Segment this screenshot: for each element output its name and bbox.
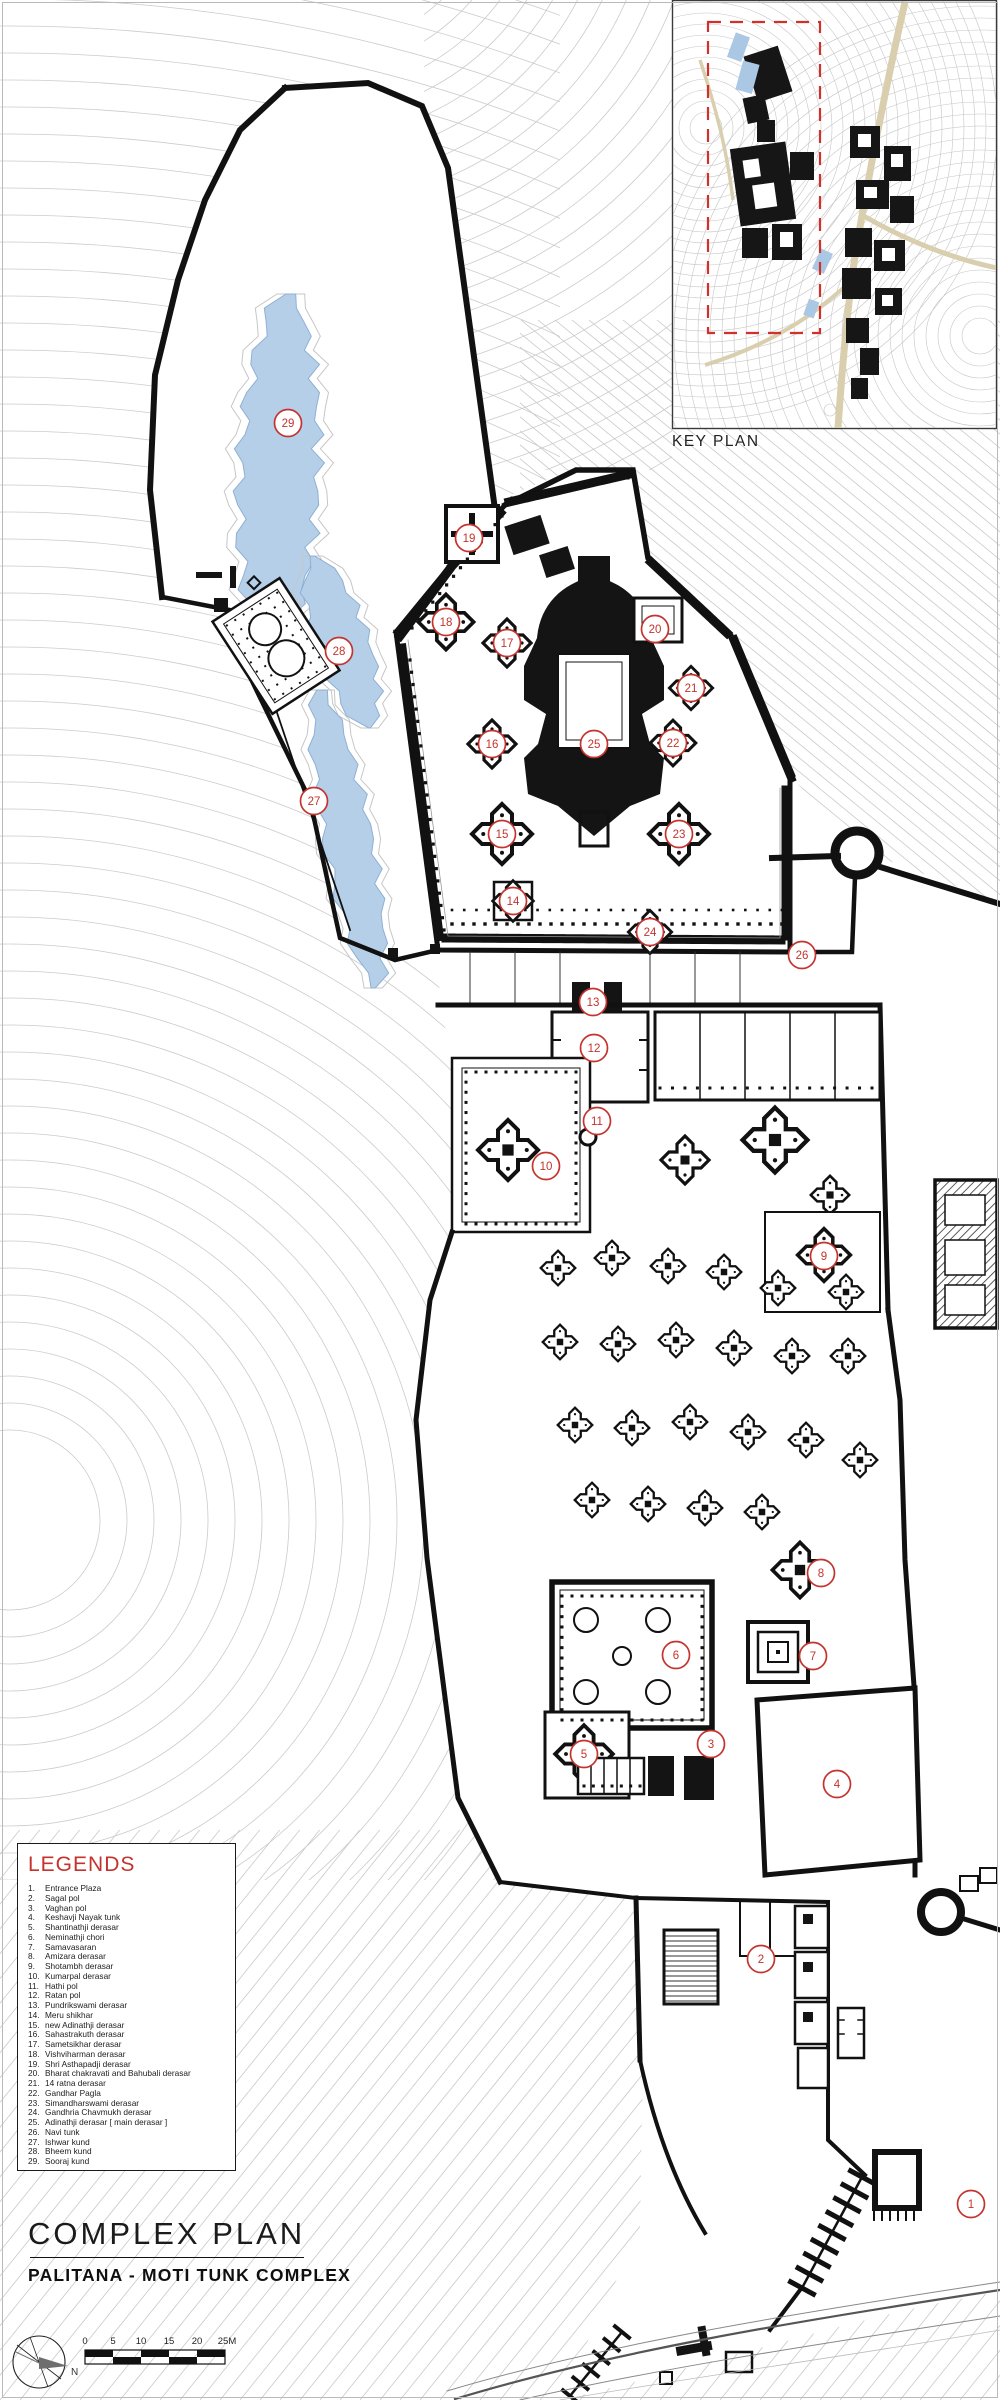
svg-text:7: 7 [810,1651,816,1663]
title-underline [30,2257,304,2258]
svg-text:20: 20 [649,624,662,636]
svg-text:29: 29 [282,418,295,430]
plan-marker-22: 22 [660,730,687,757]
svg-text:15: 15 [164,2336,175,2347]
plan-marker-20: 20 [642,616,669,643]
svg-text:23: 23 [673,829,686,841]
plan-marker-10: 10 [533,1153,560,1180]
plan-marker-27: 27 [301,788,328,815]
svg-text:6: 6 [673,1650,679,1662]
plan-marker-8: 8 [808,1560,835,1587]
plan-marker-24: 24 [637,919,664,946]
plan-marker-7: 7 [800,1643,827,1670]
svg-text:10: 10 [136,2336,147,2347]
key-plan-label: KEY PLAN [672,433,760,451]
svg-text:4: 4 [834,1779,841,1791]
svg-text:8: 8 [818,1568,824,1580]
plan-marker-11: 11 [584,1108,611,1135]
svg-text:5: 5 [110,2336,115,2347]
plan-marker-23: 23 [666,821,693,848]
svg-text:28: 28 [333,646,346,658]
plan-marker-18: 18 [433,609,460,636]
plan-marker-15: 15 [489,821,516,848]
plan-marker-19: 19 [456,525,483,552]
svg-text:22: 22 [667,738,680,750]
title-block: COMPLEX PLAN PALITANA - MOTI TUNK COMPLE… [28,2216,351,2286]
svg-text:20: 20 [192,2336,203,2347]
legend-box: LEGENDS 1.Entrance Plaza2.Sagal pol3.Vag… [17,1843,236,2171]
drawing-title: COMPLEX PLAN [28,2216,351,2252]
plan-marker-28: 28 [326,638,353,665]
svg-text:3: 3 [708,1739,714,1751]
complex-plan-sheet: 1234567891011121314151617181920212223242… [0,0,1000,2400]
svg-text:13: 13 [587,997,600,1009]
svg-text:25: 25 [588,739,601,751]
svg-text:14: 14 [507,896,520,908]
svg-text:1: 1 [968,2199,974,2211]
svg-text:5: 5 [581,1749,587,1761]
svg-text:26: 26 [796,950,809,962]
svg-text:25M: 25M [218,2336,237,2347]
svg-text:9: 9 [821,1251,827,1263]
legend-list: 1.Entrance Plaza2.Sagal pol3.Vaghan pol4… [28,1884,227,2167]
legend-item-29: 29.Sooraj kund [28,2157,227,2167]
plan-marker-13: 13 [580,989,607,1016]
plan-marker-5: 5 [571,1741,598,1768]
plan-marker-25: 25 [581,731,608,758]
svg-text:21: 21 [685,683,698,695]
scale-bar: 0 5 10 15 20 25M [82,2336,236,2364]
svg-text:17: 17 [501,638,514,650]
svg-text:2: 2 [758,1954,764,1966]
plan-marker-14: 14 [500,888,527,915]
svg-text:16: 16 [486,739,499,751]
plan-marker-12: 12 [581,1035,608,1062]
plan-marker-9: 9 [811,1243,838,1270]
svg-text:12: 12 [588,1043,601,1055]
plan-marker-2: 2 [748,1946,775,1973]
plan-marker-29: 29 [275,410,302,437]
plan-marker-21: 21 [678,675,705,702]
drawing-subtitle: PALITANA - MOTI TUNK COMPLEX [28,2265,351,2286]
plan-marker-17: 17 [494,630,521,657]
svg-text:19: 19 [463,533,476,545]
north-label: N [71,2367,78,2378]
plan-marker-6: 6 [663,1642,690,1669]
plan-marker-3: 3 [698,1731,725,1758]
svg-text:11: 11 [591,1116,603,1128]
svg-text:10: 10 [540,1161,553,1173]
plan-marker-1: 1 [958,2191,985,2218]
svg-text:15: 15 [496,829,509,841]
plan-marker-26: 26 [789,942,816,969]
svg-text:24: 24 [644,927,657,939]
svg-text:18: 18 [440,617,453,629]
svg-text:27: 27 [308,796,321,808]
plan-marker-4: 4 [824,1771,851,1798]
plan-marker-16: 16 [479,731,506,758]
legend-title: LEGENDS [28,1853,227,1877]
svg-text:0: 0 [82,2336,87,2347]
